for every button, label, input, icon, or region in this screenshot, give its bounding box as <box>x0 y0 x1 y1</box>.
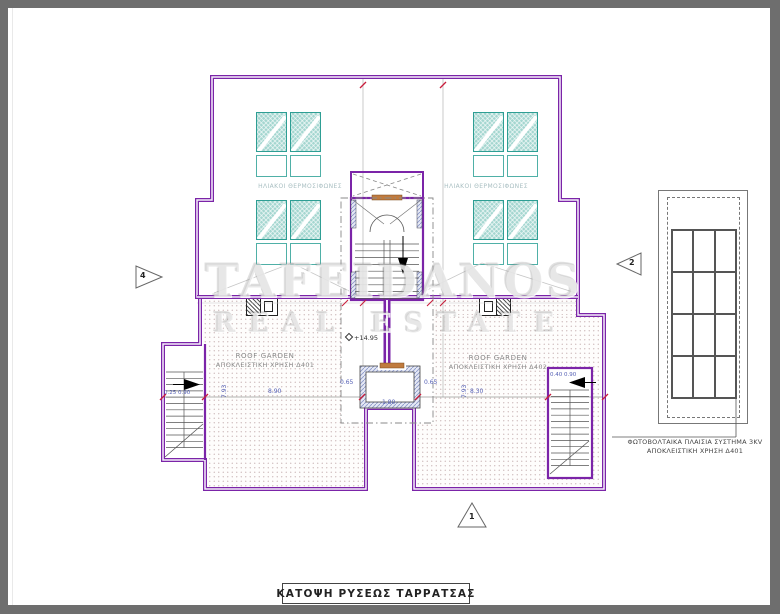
dim-shaft-wall-right: 0.65 <box>424 379 437 386</box>
solar-tank <box>256 155 287 177</box>
pv-cell <box>693 356 714 398</box>
roof-garden-left-subtitle: ΑΠΟΚΛΕΙΣΤΙΚΗ ΧΡΗΣΗ Δ401 <box>195 361 335 369</box>
solar-tank <box>473 243 504 265</box>
section-marker-4-number: 4 <box>140 271 146 280</box>
pv-cell <box>693 230 714 272</box>
pv-cell <box>693 272 714 314</box>
unit-body <box>480 298 496 315</box>
dim-right-garden-height: 7.93 <box>461 385 468 398</box>
pv-cell <box>715 272 736 314</box>
pv-cell <box>672 272 693 314</box>
pv-cell <box>672 230 693 272</box>
section-marker-2-number: 2 <box>629 258 635 267</box>
photovoltaic-label-line1: ΦΩΤΟΒΟΛΤΑΙΚΑ ΠΛΑΙΣΙΑ ΣΥΣΤΗΜΑ 3KV <box>609 438 780 447</box>
solar-tank <box>256 243 287 265</box>
solar-tank <box>473 155 504 177</box>
stair-enclosure-interior <box>341 197 433 423</box>
level-annotation: +14.95 <box>346 334 378 342</box>
unit-hatch <box>247 298 261 315</box>
photovoltaic-label: ΦΩΤΟΒΟΛΤΑΙΚΑ ΠΛΑΙΣΙΑ ΣΥΣΤΗΜΑ 3KV ΑΠΟΚΛΕΙ… <box>609 438 780 457</box>
unit-hatch <box>496 298 510 315</box>
drawing-title-text: ΚΑΤΟΨΗ ΡΥΣΕΩΣ ΤΑΡΡΑΤΣΑΣ <box>276 588 475 600</box>
roof-garden-label-right: ROOF GARDEN ΑΠΟΚΛΕΙΣΤΙΚΗ ΧΡΗΣΗ Δ402 <box>428 354 568 371</box>
solar-heater-label-left: ΗΛΙΑΚΟΙ ΘΕΡΜΟΣΙΦΩΝΕΣ <box>254 183 346 191</box>
dim-left-stair: 0.25 0.90 <box>164 390 190 396</box>
solar-tank <box>290 155 321 177</box>
roof-garden-left-title: ROOF GARDEN <box>195 352 335 361</box>
solar-panel-group <box>256 112 321 178</box>
pv-cell <box>672 356 693 398</box>
solar-panel <box>290 200 321 240</box>
level-value: +14.95 <box>354 334 378 342</box>
rooftop-unit <box>479 297 511 316</box>
dim-right-stair: 0.40 0.90 <box>550 372 576 378</box>
roof-garden-right-title: ROOF GARDEN <box>428 354 568 363</box>
solar-panel-group <box>473 112 538 178</box>
drawing-title: ΚΑΤΟΨΗ ΡΥΣΕΩΣ ΤΑΡΡΑΤΣΑΣ <box>282 583 470 604</box>
dim-shaft-width: 1.80 <box>382 399 395 406</box>
roof-garden-right-subtitle: ΑΠΟΚΛΕΙΣΤΙΚΗ ΧΡΗΣΗ Δ402 <box>428 363 568 371</box>
pv-cell <box>715 230 736 272</box>
level-marker-icon <box>345 333 353 341</box>
unit-body <box>261 298 277 315</box>
pv-cell <box>715 314 736 356</box>
solar-panel <box>473 112 504 152</box>
solar-panel-group <box>473 200 538 266</box>
solar-tank <box>507 155 538 177</box>
solar-panel <box>290 112 321 152</box>
solar-panel <box>507 200 538 240</box>
solar-panel-group <box>256 200 321 266</box>
page-edge-line <box>12 8 13 605</box>
solar-tank <box>290 243 321 265</box>
photovoltaic-grid <box>671 229 737 399</box>
roof-garden-right-area <box>416 315 602 488</box>
dim-right-garden-width: 8.30 <box>470 388 483 395</box>
pv-cell <box>693 314 714 356</box>
solar-panel <box>256 200 287 240</box>
roof-garden-label-left: ROOF GARDEN ΑΠΟΚΛΕΙΣΤΙΚΗ ΧΡΗΣΗ Δ401 <box>195 352 335 369</box>
dim-shaft-wall-left: 0.65 <box>340 379 353 386</box>
pv-cell <box>715 356 736 398</box>
solar-panel <box>507 112 538 152</box>
solar-heater-label-right: ΗΛΙΑΚΟΙ ΘΕΡΜΟΣΙΦΩΝΕΣ <box>440 183 532 191</box>
pv-cell <box>672 314 693 356</box>
dim-left-garden-height: 7.93 <box>221 385 228 398</box>
drawing-canvas: ΗΛΙΑΚΟΙ ΘΕΡΜΟΣΙΦΩΝΕΣ ΗΛΙΑΚΟΙ ΘΕΡΜΟΣΙΦΩΝΕ… <box>0 0 780 614</box>
solar-panel <box>473 200 504 240</box>
solar-tank <box>507 243 538 265</box>
dim-left-garden-width: 8.90 <box>268 388 281 395</box>
solar-panel <box>256 112 287 152</box>
section-marker-1-number: 1 <box>469 512 475 521</box>
rooftop-unit <box>246 297 278 316</box>
photovoltaic-array <box>658 190 748 424</box>
photovoltaic-label-line2: ΑΠΟΚΛΕΙΣΤΙΚΗ ΧΡΗΣΗ Δ401 <box>609 447 780 456</box>
